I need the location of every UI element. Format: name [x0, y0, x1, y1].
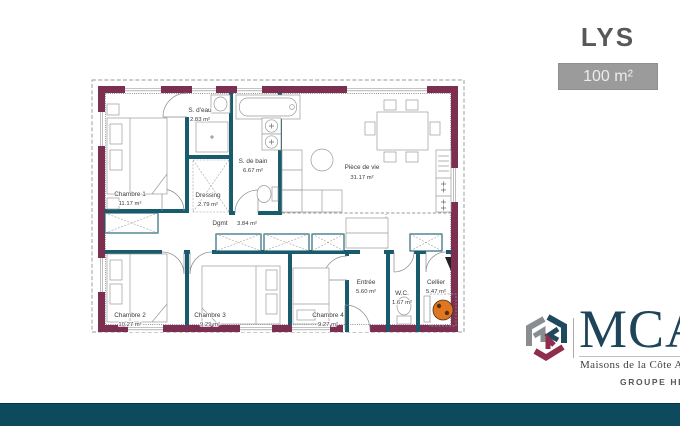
room-label-chambre1: Chambre 1	[114, 191, 146, 198]
room-area-dressing: 2.79 m²	[198, 202, 218, 208]
page: { "header": { "title": "LYS", "area_badg…	[0, 0, 680, 425]
plan-header: LYS 100 m²	[558, 22, 658, 90]
brand-rule	[579, 356, 680, 357]
room-area-chambre3: 9.29 m²	[200, 322, 220, 328]
brand-tagline: Maisons de la Côte Atlantique	[580, 359, 680, 371]
mca-cube-logo-icon	[522, 314, 570, 362]
logo-divider	[573, 318, 574, 358]
room-label-dressing: Dressing	[195, 192, 221, 199]
floor-plan: Chambre 1 11.17 m² S. d'eau 2.83 m² Dres…	[85, 70, 480, 355]
room-area-s-deau: 2.83 m²	[190, 117, 210, 123]
brand-name: MCA	[579, 298, 680, 360]
room-area-s-de-bain: 6.67 m²	[243, 168, 263, 174]
round-rug	[311, 149, 333, 171]
brand-group: GROUPE HEXAOM	[620, 377, 680, 387]
room-area-entree: 5.60 m²	[356, 289, 376, 295]
dining-table	[365, 100, 440, 162]
room-label-chambre3: Chambre 3	[194, 312, 226, 319]
water-heater	[433, 300, 453, 320]
room-label-entree: Entrée	[357, 279, 376, 286]
room-label-degagement: Dgmt	[212, 220, 227, 227]
room-area-wc: 1.67 m²	[392, 300, 412, 306]
room-label-wc: W.C.	[395, 290, 409, 297]
room-label-s-deau: S. d'eau	[188, 107, 212, 114]
model-title: LYS	[558, 22, 658, 53]
footer-bar	[0, 403, 680, 426]
room-label-chambre2: Chambre 2	[114, 312, 146, 319]
brand-block: MCA Maisons de la Côte Atlantique GROUPE…	[520, 306, 680, 396]
corner-marker	[445, 257, 451, 271]
surface-badge: 100 m²	[558, 63, 658, 90]
room-area-piece-de-vie: 31.17 m²	[350, 175, 373, 181]
room-label-chambre4: Chambre 4	[312, 312, 344, 319]
shower-room-fixtures	[196, 95, 230, 152]
room-area-chambre2: 10.27 m²	[118, 322, 141, 328]
room-label-cellier: Cellier	[427, 279, 446, 286]
room-area-cellier: 5.47 m²	[426, 289, 446, 295]
kitchen-counter	[436, 150, 451, 212]
room-label-piece-de-vie: Pièce de vie	[345, 164, 380, 171]
room-area-chambre1: 11.17 m²	[119, 201, 142, 207]
room-area-chambre4: 9.27 m²	[318, 322, 338, 328]
room-area-degagement: 3.84 m²	[237, 221, 257, 227]
room-label-s-de-bain: S. de bain	[239, 158, 268, 165]
